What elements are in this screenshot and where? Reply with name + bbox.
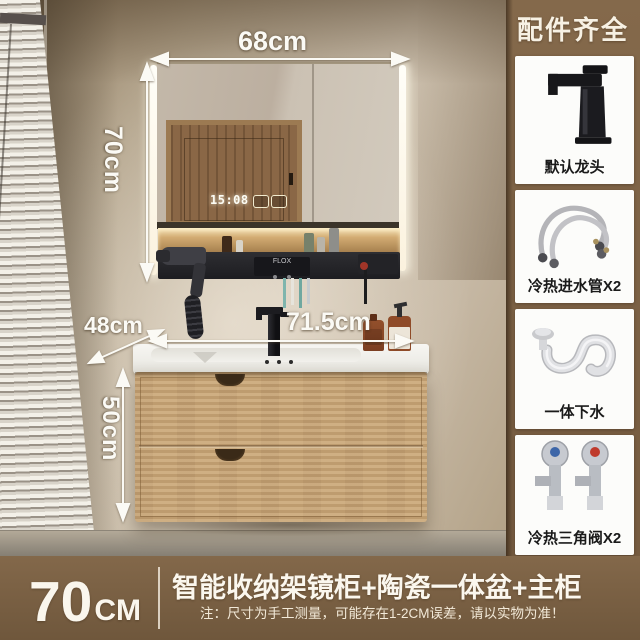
mirror-divider-line bbox=[312, 64, 314, 224]
footer-size-number: 70 bbox=[29, 564, 92, 640]
faucet-spout-lip bbox=[256, 314, 262, 320]
soap-pump-neck bbox=[397, 306, 402, 317]
accessories-panel-edge bbox=[506, 0, 513, 556]
footer-size-unit: CM bbox=[94, 596, 141, 626]
counter-depth-label: 48cm bbox=[84, 312, 143, 339]
inlet-hoses-icon bbox=[515, 190, 634, 275]
hook-item bbox=[360, 262, 368, 270]
drawer-divider bbox=[139, 445, 423, 448]
shelf-bottle-green bbox=[304, 233, 314, 253]
mirror-glass: 15:08 bbox=[157, 62, 399, 224]
cabinet-wall-shadow bbox=[148, 520, 430, 536]
integrated-drain-icon bbox=[515, 309, 634, 401]
accessory-card-faucet: 默认龙头 bbox=[515, 56, 634, 184]
counter-width-label: 71.5cm bbox=[286, 308, 371, 337]
overflow-dot-2 bbox=[277, 360, 281, 364]
toothbrush-2 bbox=[291, 278, 294, 305]
soap-bottle-right bbox=[388, 316, 411, 351]
faucet-product-icon bbox=[515, 56, 634, 156]
angle-valves-icon bbox=[515, 435, 634, 527]
soap-bottle-left-cap bbox=[370, 314, 377, 321]
hair-dryer-nozzle bbox=[156, 250, 170, 262]
product-image: 15:08 FLOX bbox=[0, 0, 640, 640]
accessory-label: 默认龙头 bbox=[542, 156, 606, 184]
rack-button-1 bbox=[273, 275, 277, 279]
footer-divider bbox=[158, 567, 160, 629]
door-panel-line bbox=[184, 138, 284, 221]
accessories-panel-title: 配件齐全 bbox=[506, 10, 640, 47]
shelf-bottle-grey bbox=[317, 237, 325, 253]
soap-bottle-right-label bbox=[389, 327, 410, 349]
mirror-led-strip-right bbox=[399, 65, 406, 271]
mirror-led-strip-left bbox=[150, 65, 157, 275]
cabinet-height-label: 50cm bbox=[96, 396, 124, 461]
overflow-dot-1 bbox=[265, 360, 269, 364]
footer-note: 注：尺寸为手工测量，可能存在1-2CM误差，请以实物为准！ bbox=[200, 602, 630, 622]
footer-title: 智能收纳架镜柜+陶瓷一体盆+主柜 bbox=[172, 566, 638, 605]
mirror-height-label: 70cm bbox=[98, 126, 127, 194]
shelf-bottle-pump bbox=[329, 228, 339, 253]
shelf-bottle-amber bbox=[222, 236, 232, 253]
hook-strap bbox=[364, 270, 367, 304]
clock-badge-icon-1 bbox=[253, 195, 269, 208]
accessory-card-drain: 一体下水 bbox=[515, 309, 634, 429]
door-handle bbox=[289, 173, 293, 185]
toothbrush-4 bbox=[307, 278, 310, 304]
mirror-door-reflection bbox=[166, 120, 302, 224]
footer-size: 70 CM bbox=[18, 556, 152, 640]
accessory-label: 冷热进水管X2 bbox=[526, 275, 623, 303]
clock-badge-icon-2 bbox=[271, 195, 287, 208]
footer-bar: 70 CM 智能收纳架镜柜+陶瓷一体盆+主柜 注：尺寸为手工测量，可能存在1-2… bbox=[0, 556, 640, 640]
accessory-label: 冷热三角阀X2 bbox=[526, 527, 623, 555]
accessory-label: 一体下水 bbox=[542, 401, 606, 429]
accessory-card-hoses: 冷热进水管X2 bbox=[515, 190, 634, 303]
right-wall-shadow bbox=[418, 0, 506, 280]
vanity-cabinet bbox=[135, 372, 427, 522]
toothbrush-3 bbox=[299, 278, 302, 308]
smart-storage-rack: FLOX bbox=[158, 252, 400, 279]
overflow-dot-3 bbox=[289, 360, 293, 364]
faucet-column bbox=[268, 314, 280, 356]
accessory-card-valves: 冷热三角阀X2 bbox=[515, 435, 634, 555]
rack-control-panel: FLOX bbox=[254, 257, 310, 276]
basin-corner-shade bbox=[193, 352, 217, 363]
accessories-panel: 配件齐全 默认龙头 bbox=[506, 0, 640, 556]
mirror-width-label: 68cm bbox=[238, 26, 307, 57]
mirror-clock-display: 15:08 bbox=[210, 193, 250, 208]
rack-brand-label: FLOX bbox=[254, 257, 310, 266]
